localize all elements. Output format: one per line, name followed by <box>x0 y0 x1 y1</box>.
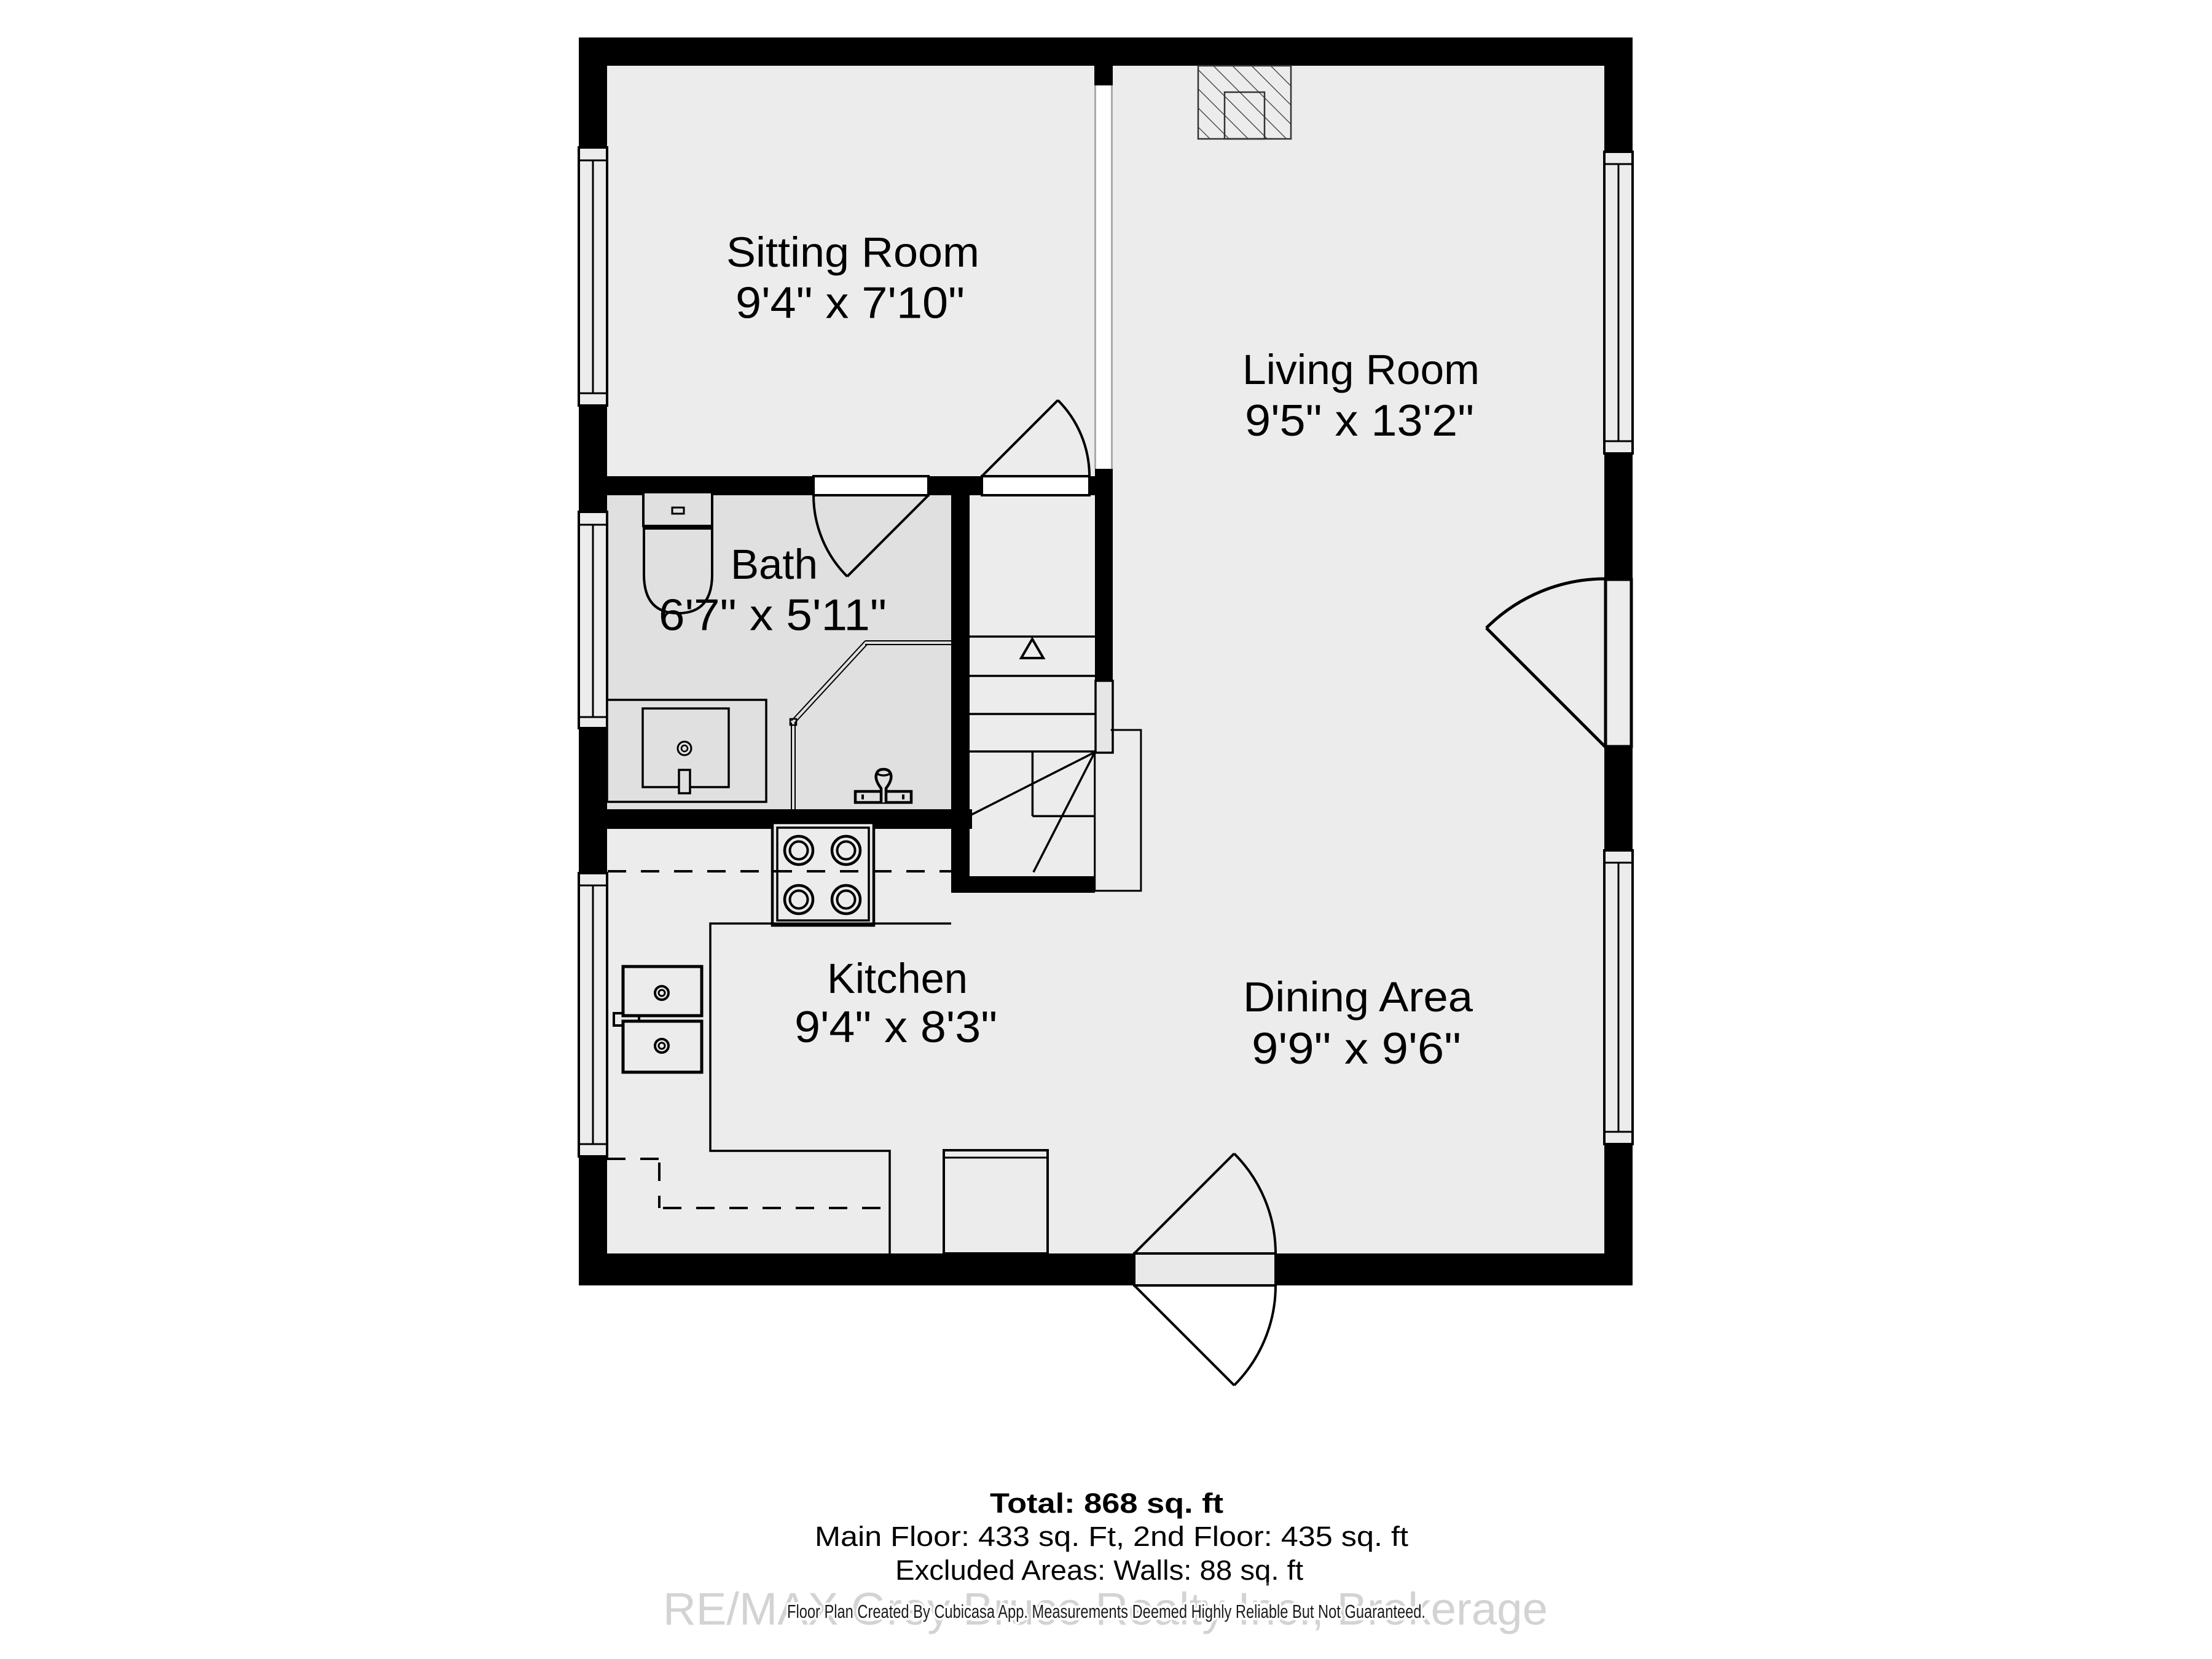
svg-text:Floor Plan Created By Cubicasa: Floor Plan Created By Cubicasa App. Meas… <box>787 1601 1426 1622</box>
svg-text:Dining Area: Dining Area <box>1243 973 1473 1021</box>
svg-text:Main Floor: 433 sq. Ft, 2nd Fl: Main Floor: 433 sq. Ft, 2nd Floor: 435 s… <box>815 1521 1408 1552</box>
svg-text:Total: 868 sq. ft: Total: 868 sq. ft <box>990 1488 1223 1519</box>
svg-text:Living Room: Living Room <box>1242 346 1480 393</box>
svg-text:Bath: Bath <box>731 541 818 588</box>
svg-text:Sitting Room: Sitting Room <box>726 229 979 276</box>
svg-text:9'9" x 9'6": 9'9" x 9'6" <box>1252 1024 1461 1073</box>
svg-text:9'4" x 8'3": 9'4" x 8'3" <box>794 1002 997 1052</box>
svg-text:9'5" x 13'2": 9'5" x 13'2" <box>1245 396 1474 445</box>
svg-text:6'7" x 5'11": 6'7" x 5'11" <box>659 590 887 640</box>
svg-text:Excluded Areas: Walls: 88 sq.: Excluded Areas: Walls: 88 sq. ft <box>895 1555 1303 1586</box>
svg-text:Kitchen: Kitchen <box>827 955 968 1002</box>
svg-text:9'4" x 7'10": 9'4" x 7'10" <box>735 278 965 328</box>
